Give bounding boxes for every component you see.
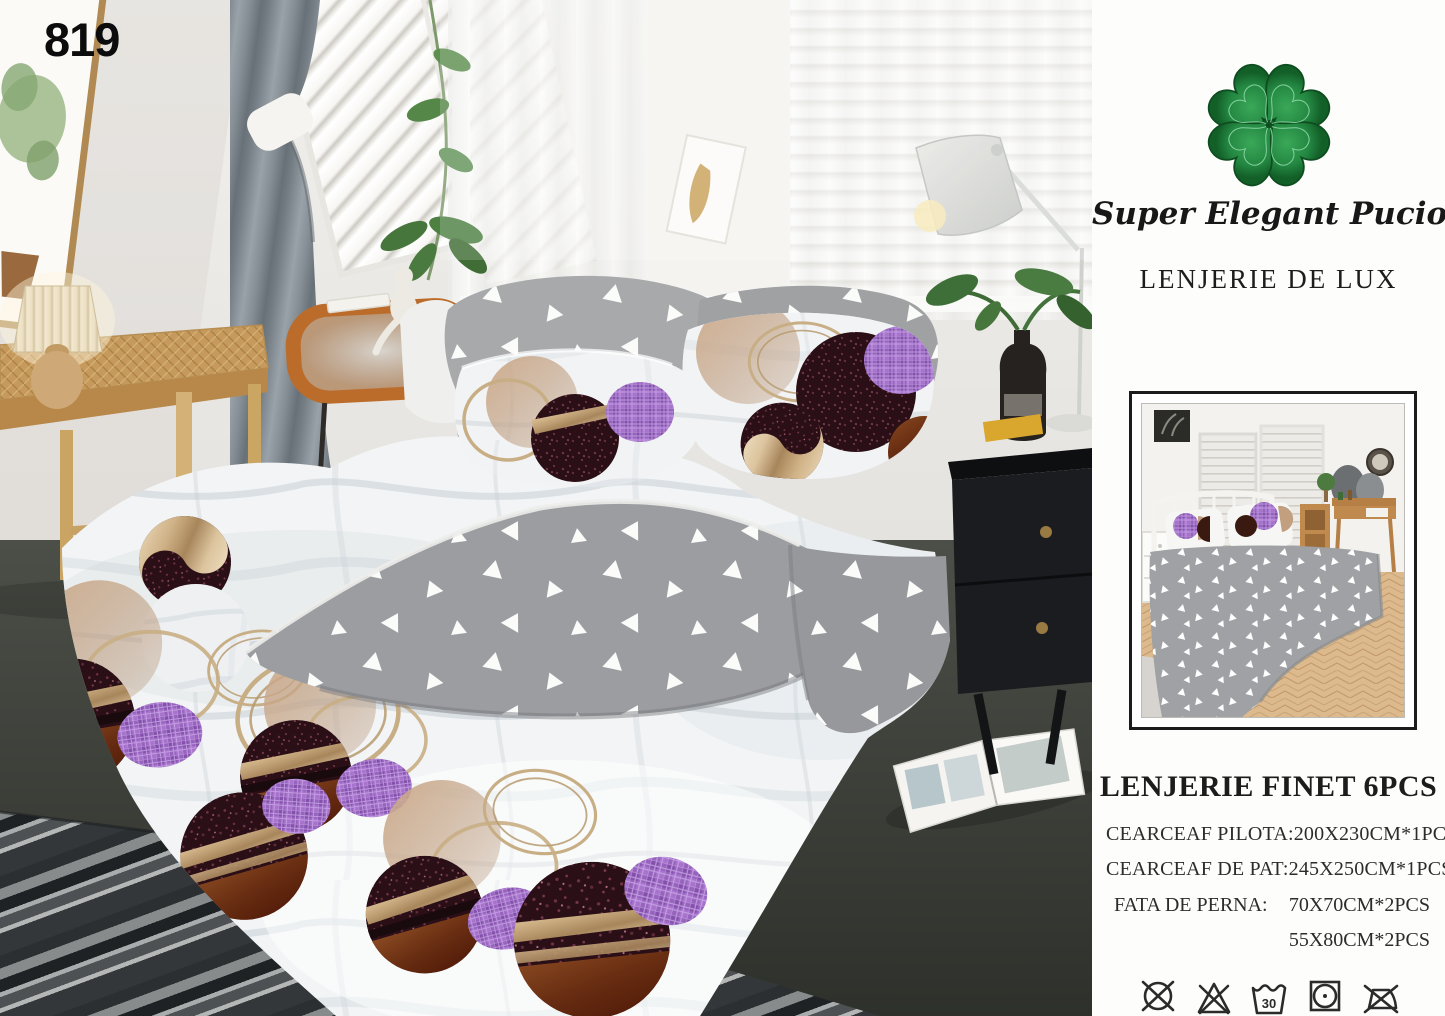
care-symbols: 30 — [1138, 972, 1400, 1016]
thumbnail-scene — [1142, 404, 1404, 717]
brand-logo-clover — [1092, 58, 1445, 190]
brand-name: Super Elegant Pucioasa — [1092, 196, 1445, 232]
brand-tagline: LENJERIE DE LUX — [1092, 264, 1445, 295]
product-thumbnail — [1129, 391, 1417, 730]
design-code: 819 — [44, 12, 119, 67]
spec-fata-perna-label: FATA DE PERNA: — [1114, 894, 1268, 917]
info-panel: Super Elegant Pucioasa LENJERIE DE LUX — [1092, 0, 1445, 1016]
spec-cearceaf-pilota: CEARCEAF PILOTA:200X230CM*1PCS — [1106, 823, 1436, 846]
spec-fata-perna: FATA DE PERNA: 70X70CM*2PCS — [1114, 894, 1430, 917]
do-not-bleach-icon — [1194, 972, 1234, 1016]
drawer-knob — [1040, 526, 1052, 538]
do-not-dry-clean-icon — [1138, 972, 1178, 1016]
tumble-dry-icon — [1305, 972, 1345, 1016]
bedroom-photo: 819 — [0, 0, 1092, 1016]
spec-cearceaf-pat: CEARCEAF DE PAT:245X250CM*1PCS — [1106, 858, 1436, 881]
wash-temp: 30 — [1262, 996, 1276, 1011]
product-title: LENJERIE FINET 6PCS — [1092, 770, 1445, 804]
clover-icon — [1204, 58, 1334, 190]
thumb-art — [1154, 410, 1190, 442]
bedroom-scene — [0, 0, 1092, 1016]
drawer-knob — [1036, 622, 1048, 634]
do-not-iron-icon — [1360, 972, 1400, 1016]
product-sheet: 819 — [0, 0, 1445, 1016]
spec-fata-perna-size-2: 55X80CM*2PCS — [1114, 929, 1430, 952]
spec-fata-perna-size-1: 70X70CM*2PCS — [1289, 894, 1430, 917]
machine-wash-30-icon: 30 — [1249, 972, 1289, 1016]
